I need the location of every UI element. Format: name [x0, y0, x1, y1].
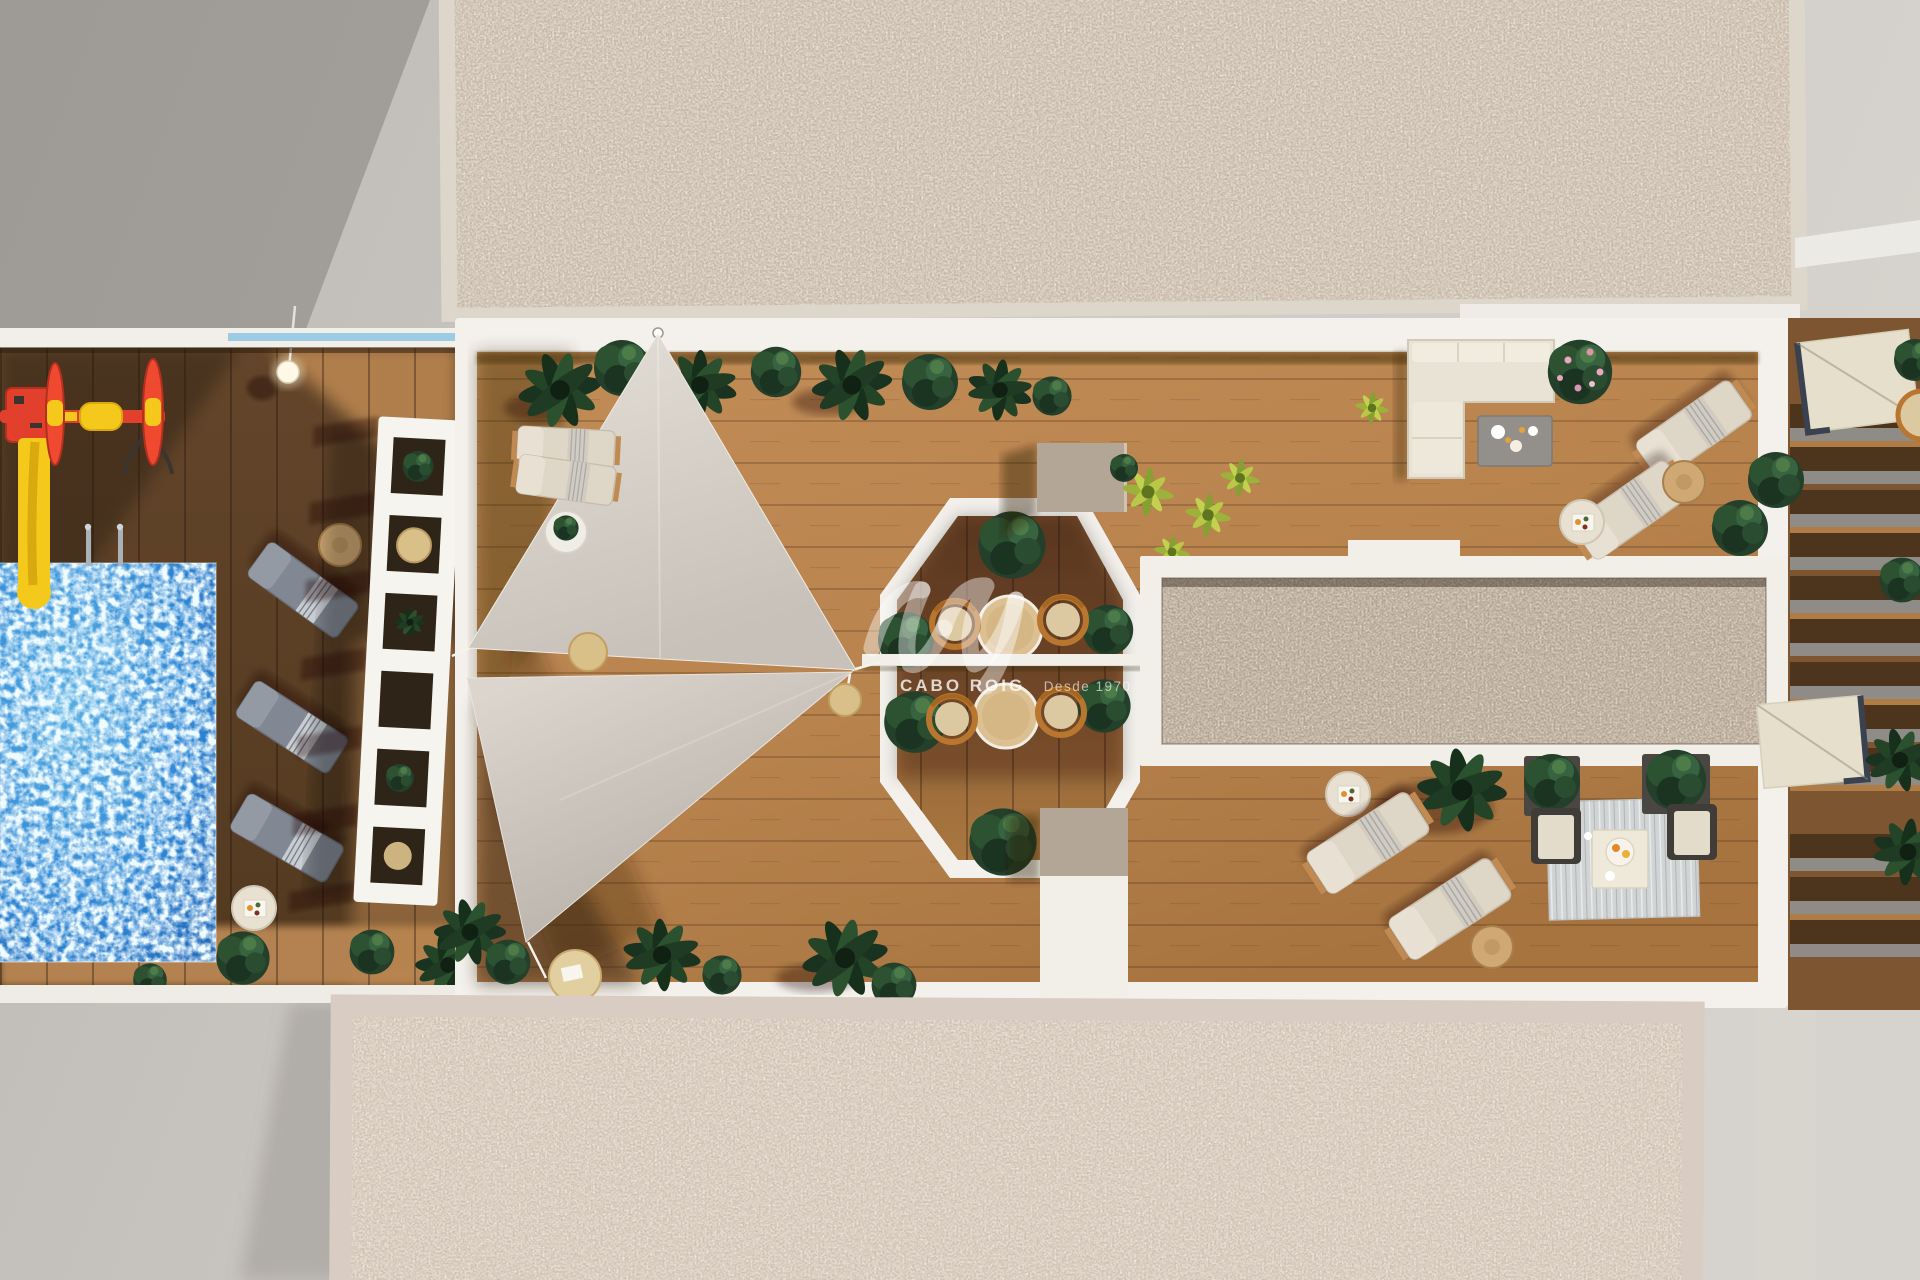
- column-bottom: [1040, 808, 1128, 878]
- swimming-pool: [0, 563, 216, 962]
- dining-chair: [1038, 689, 1084, 735]
- bush-plant: [1748, 452, 1804, 508]
- dining-chair: [1040, 597, 1086, 643]
- pebble-skylight: [1140, 540, 1788, 766]
- dining-table: [978, 596, 1042, 660]
- gravel-roof-top: [438, 0, 1807, 322]
- bush-plant: [350, 930, 395, 975]
- bush-plant: [216, 931, 269, 984]
- trellis-table: [396, 527, 432, 563]
- dining-chair: [932, 601, 978, 647]
- side-table: [1663, 461, 1705, 503]
- shade-canopy: [1757, 696, 1868, 789]
- octagon-bush: [1083, 605, 1133, 655]
- side-table: [1471, 926, 1513, 968]
- walkway-white: [1040, 876, 1128, 1008]
- side-table: [232, 886, 276, 930]
- render-canvas: CABO ROIG Desde 1970: [0, 0, 1920, 1280]
- planter-bush: [1524, 754, 1580, 810]
- terrace-render: [0, 0, 1920, 1280]
- lounge-coffee-table: [1592, 830, 1648, 888]
- armchair: [1667, 804, 1717, 860]
- flowering-bush: [1548, 340, 1612, 404]
- side-table: [569, 633, 607, 671]
- side-table: [829, 684, 861, 716]
- ledge-shadow: [0, 347, 458, 353]
- armchair: [1531, 808, 1581, 864]
- coffee-table: [1478, 416, 1552, 466]
- dining-chair: [929, 696, 975, 742]
- dining-table: [974, 684, 1038, 748]
- main-terrace: [434, 318, 1788, 1008]
- bush-plant: [1712, 500, 1768, 556]
- side-table: [1560, 500, 1604, 544]
- pergola-beam: [862, 654, 1154, 666]
- gravel-roof-bottom: [329, 994, 1705, 1280]
- planter-bush: [1646, 750, 1706, 810]
- column-top: [1037, 443, 1127, 512]
- light-band-bottomright: [1756, 1003, 1816, 1280]
